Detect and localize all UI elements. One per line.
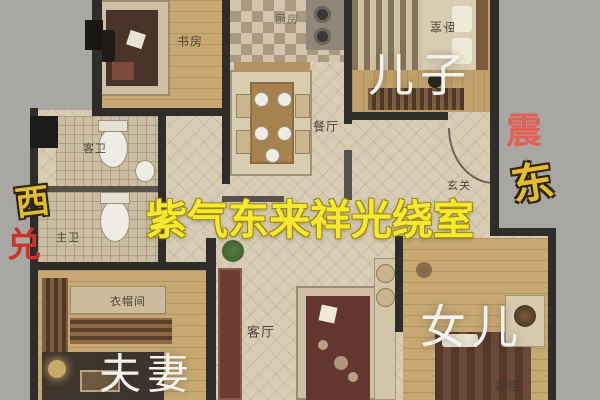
rug-floral (318, 340, 328, 350)
master-bed-lamp (48, 360, 66, 378)
guest-toilet-tank (98, 120, 128, 132)
master-toilet-tank (100, 192, 130, 204)
son-headboard (476, 0, 488, 70)
wall (490, 228, 556, 236)
master-toilet (100, 200, 130, 242)
bath-sink (135, 160, 155, 182)
overlay-east-char: 东 (506, 147, 557, 214)
tv-wall (218, 268, 242, 400)
wall (344, 112, 448, 120)
overlay-son-label: 儿子 (368, 39, 472, 105)
wall (206, 238, 216, 400)
window-box (30, 116, 58, 148)
overlay-couple-label: 夫妻 (99, 341, 195, 400)
rug-art-square (319, 305, 338, 324)
plate (254, 92, 269, 107)
floor-plan-image: 书房 厨房 餐厅 卧室 玄关 客卫 主卫 衣帽间 客厅 卧室 儿子 女儿 夫妻 … (0, 0, 600, 400)
overlay-dui-char: 兑 (7, 218, 41, 267)
wall (548, 232, 556, 400)
rug-floral (334, 356, 348, 370)
overlay-headline: 紫气东来祥光绕室 (146, 186, 474, 246)
overlay-zhen-char: 震 (506, 102, 542, 154)
dining-chair (236, 130, 251, 154)
sofa-end-table (376, 288, 395, 307)
room-label-living: 客厅 (247, 322, 275, 341)
wall (38, 186, 162, 192)
dining-chair (295, 130, 310, 154)
room-label-dining: 餐厅 (313, 118, 339, 135)
dining-sideboard (234, 62, 310, 72)
study-cabinet (112, 62, 134, 80)
room-label-bedroom-bottom: 卧室 (493, 378, 519, 395)
wall (92, 0, 102, 116)
room-label-study: 书房 (177, 33, 203, 50)
plate (277, 126, 292, 141)
room-label-bedroom-top: 卧室 (429, 19, 455, 36)
wall (222, 0, 230, 184)
wall (490, 0, 499, 236)
stove-burner (314, 6, 331, 23)
dining-chair (295, 94, 310, 118)
plate (265, 148, 280, 163)
rug-floral (348, 372, 358, 382)
wall (30, 262, 216, 270)
room-label-cloakroom: 衣帽间 (110, 293, 146, 309)
overlay-daughter-label: 女儿 (420, 291, 524, 357)
master-bath-floor (38, 192, 160, 264)
room-label-master-bath: 主卫 (56, 229, 80, 245)
room-label-kitchen: 厨房 (275, 11, 299, 27)
dining-chair (236, 94, 251, 118)
plate (254, 126, 269, 141)
cloakroom-wardrobe-left (42, 278, 68, 352)
wall (85, 20, 103, 50)
wall (395, 236, 403, 332)
living-rug-center (306, 296, 370, 400)
daughter-stool (416, 262, 432, 278)
stove-burner (314, 28, 331, 45)
plate (277, 92, 292, 107)
sofa-end-table (376, 264, 395, 283)
room-label-guest-bath: 客卫 (83, 140, 107, 156)
wall (344, 0, 352, 124)
